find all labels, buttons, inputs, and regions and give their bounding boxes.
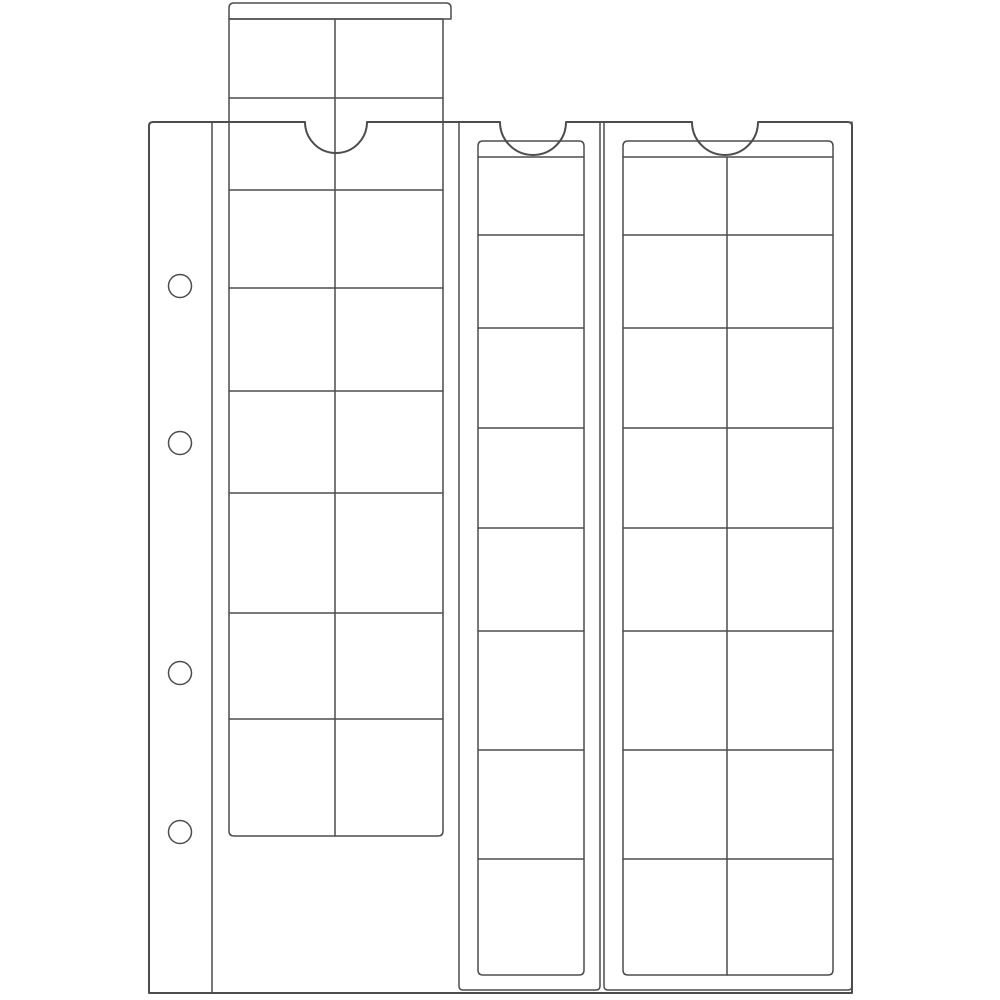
middle-outer-pocket [459,122,600,990]
coin-sheet-drawing [0,0,1000,1000]
coin-sheet-product-image [0,0,1000,1000]
left-slide-body [229,19,443,836]
page-outline [149,122,852,993]
binder-holes [169,275,192,844]
left-pocket-strip [229,3,451,836]
left-slide [229,3,451,836]
middle-pocket-strip [459,122,600,990]
middle-slide-body [478,141,584,975]
binder-hole [169,432,192,455]
right-slide-body [623,141,833,975]
left-slide-handle-band [229,3,451,19]
binder-page [149,122,852,993]
binder-hole [169,821,192,844]
binder-hole [169,275,192,298]
binder-hole [169,662,192,685]
right-outer-pocket [604,122,852,990]
middle-slide [478,141,584,975]
right-slide [623,141,833,975]
right-pocket-strip [604,122,852,990]
